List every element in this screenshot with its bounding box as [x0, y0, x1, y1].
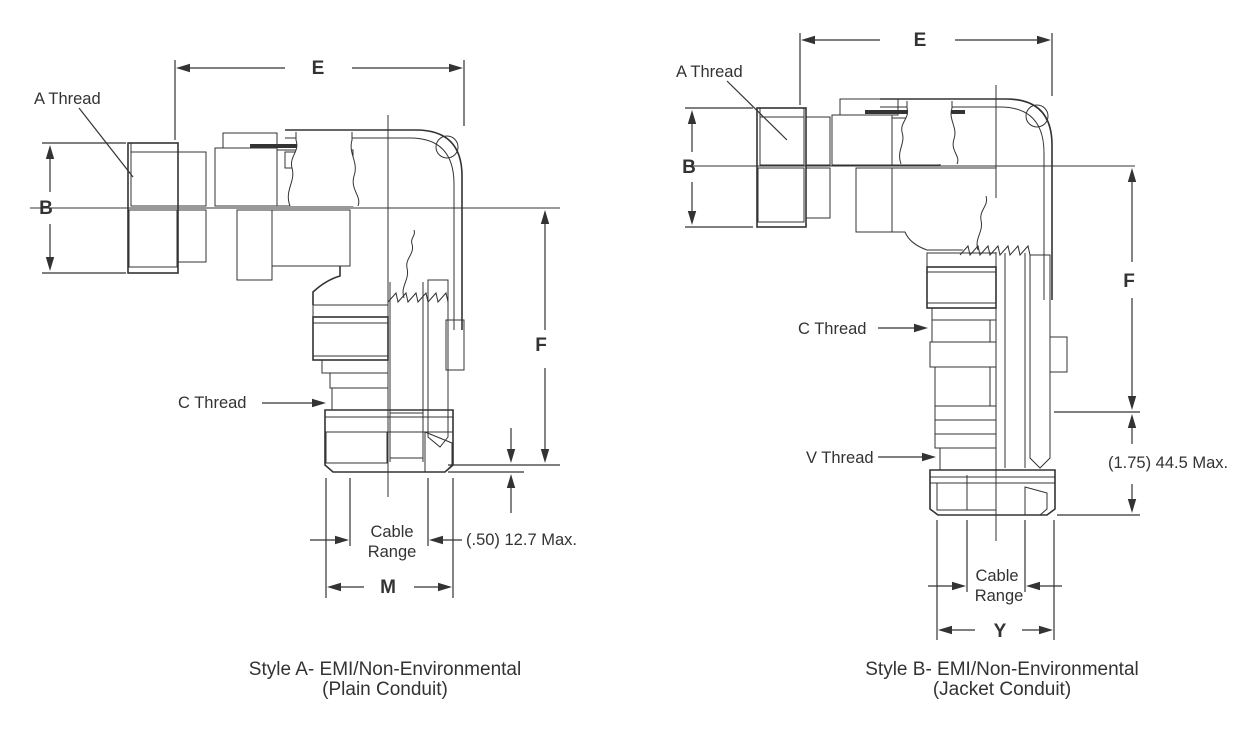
- dim-label-m-a: M: [380, 577, 396, 598]
- nut-knurl: [758, 168, 804, 222]
- dim-label-b-a: B: [39, 198, 53, 219]
- dimension-cable-range-a: Cable Range: [310, 478, 462, 561]
- nut-knurl: [129, 210, 177, 267]
- section-strip-hatch: [1030, 255, 1050, 468]
- cable-range-label-b2: Range: [975, 587, 1024, 605]
- callout-c-thread-a: C Thread: [178, 394, 326, 412]
- leg-knurl: [927, 272, 996, 303]
- leg-band: [927, 253, 996, 267]
- clamp-knurl: [856, 168, 892, 232]
- break-plume-fill: [288, 132, 359, 206]
- leg-band: [313, 305, 388, 317]
- caption-style-b-line2: (Jacket Conduit): [933, 679, 1071, 700]
- c-thread-label-a: C Thread: [178, 394, 246, 412]
- connector-drawings-svg: E B F (.50) 12.7 Max.: [0, 0, 1254, 752]
- leg-step2: [935, 406, 996, 448]
- body-lower-step: [272, 210, 350, 266]
- collar-ribs: [178, 152, 206, 206]
- dim-label-e-a: E: [312, 58, 325, 79]
- break-plume-fill: [900, 101, 958, 164]
- cable-range-label-a: Cable: [370, 523, 413, 541]
- bottom-nut-knurl: [326, 432, 387, 463]
- dim-label-y-b: Y: [994, 621, 1007, 642]
- collar-lower: [806, 168, 830, 218]
- callout-a-thread-b: A Thread: [676, 63, 787, 140]
- collar-lower: [178, 210, 206, 262]
- caption-style-a-line1: Style A- EMI/Non-Environmental: [249, 659, 521, 680]
- callout-v-thread-b: V Thread: [806, 449, 936, 467]
- collar-ribs: [806, 117, 830, 165]
- side-fitting-hatch: [1050, 337, 1067, 372]
- dim-label-e-b: E: [914, 30, 927, 51]
- leg-knurl: [313, 323, 388, 356]
- leg-knurl2: [935, 367, 990, 406]
- leg-step1: [932, 308, 996, 320]
- c-thread-ridges: [932, 320, 990, 342]
- cable-range-label-b: Cable: [975, 567, 1018, 585]
- a-thread-ridges: [131, 152, 178, 206]
- clamp-section-hatch: [832, 115, 892, 165]
- v-thread-label-b: V Thread: [806, 449, 874, 467]
- max-note-a: (.50) 12.7 Max.: [466, 531, 577, 549]
- conduit-wedge-hatch: [1025, 487, 1047, 515]
- break-plume-fill: [962, 198, 1040, 252]
- clamp-knurl: [237, 210, 272, 280]
- callout-a-thread-a: A Thread: [34, 90, 133, 177]
- figure-style-a: E B F (.50) 12.7 Max.: [30, 58, 577, 700]
- leg-step1: [322, 360, 388, 373]
- dimension-b-b: B: [682, 108, 753, 227]
- dimension-max-a: (.50) 12.7 Max.: [466, 428, 577, 549]
- leg-band2: [930, 342, 996, 367]
- section-strip-hatch: [428, 280, 448, 447]
- dim-label-b-b: B: [682, 157, 696, 178]
- clamp-section-hatch: [215, 148, 277, 206]
- c-thread-label-b: C Thread: [798, 320, 866, 338]
- leg-knurl-nut: [927, 267, 996, 308]
- leg-transition: [313, 266, 340, 305]
- callout-c-thread-b: C Thread: [798, 320, 928, 338]
- dim-label-f-b: F: [1123, 271, 1135, 292]
- leg-step2: [330, 373, 388, 388]
- dimension-e-a: E: [175, 58, 464, 140]
- dimension-f-a: F: [535, 210, 549, 463]
- dim-label-f-a: F: [535, 335, 547, 356]
- nut-top-hatch: [760, 108, 804, 117]
- gland-ribs: [390, 413, 423, 458]
- caption-style-b-line1: Style B- EMI/Non-Environmental: [865, 659, 1139, 680]
- break-plume-fill: [392, 232, 452, 298]
- connector-drawing-a: [128, 130, 560, 472]
- dimension-cable-range-b: Cable Range: [928, 520, 1062, 605]
- a-thread-label-a: A Thread: [34, 90, 101, 108]
- caption-style-a-line2: (Plain Conduit): [322, 679, 448, 700]
- a-thread-ridges: [760, 117, 804, 165]
- dimension-f-b: F: [1123, 168, 1136, 410]
- dimension-max-b: (1.75) 44.5 Max.: [1108, 414, 1228, 513]
- cable-range-label-a2: Range: [368, 543, 417, 561]
- technical-drawing-page: E B F (.50) 12.7 Max.: [0, 0, 1254, 752]
- dimension-e-b: E: [800, 30, 1052, 105]
- figure-style-b: E B F (1.75) 44.5 Max.: [676, 30, 1228, 700]
- a-thread-label-b: A Thread: [676, 63, 743, 81]
- c-thread-ridges: [332, 388, 388, 410]
- nut-top-hatch: [131, 143, 178, 152]
- max-note-b: (1.75) 44.5 Max.: [1108, 454, 1228, 472]
- v-thread-ridges: [940, 448, 996, 470]
